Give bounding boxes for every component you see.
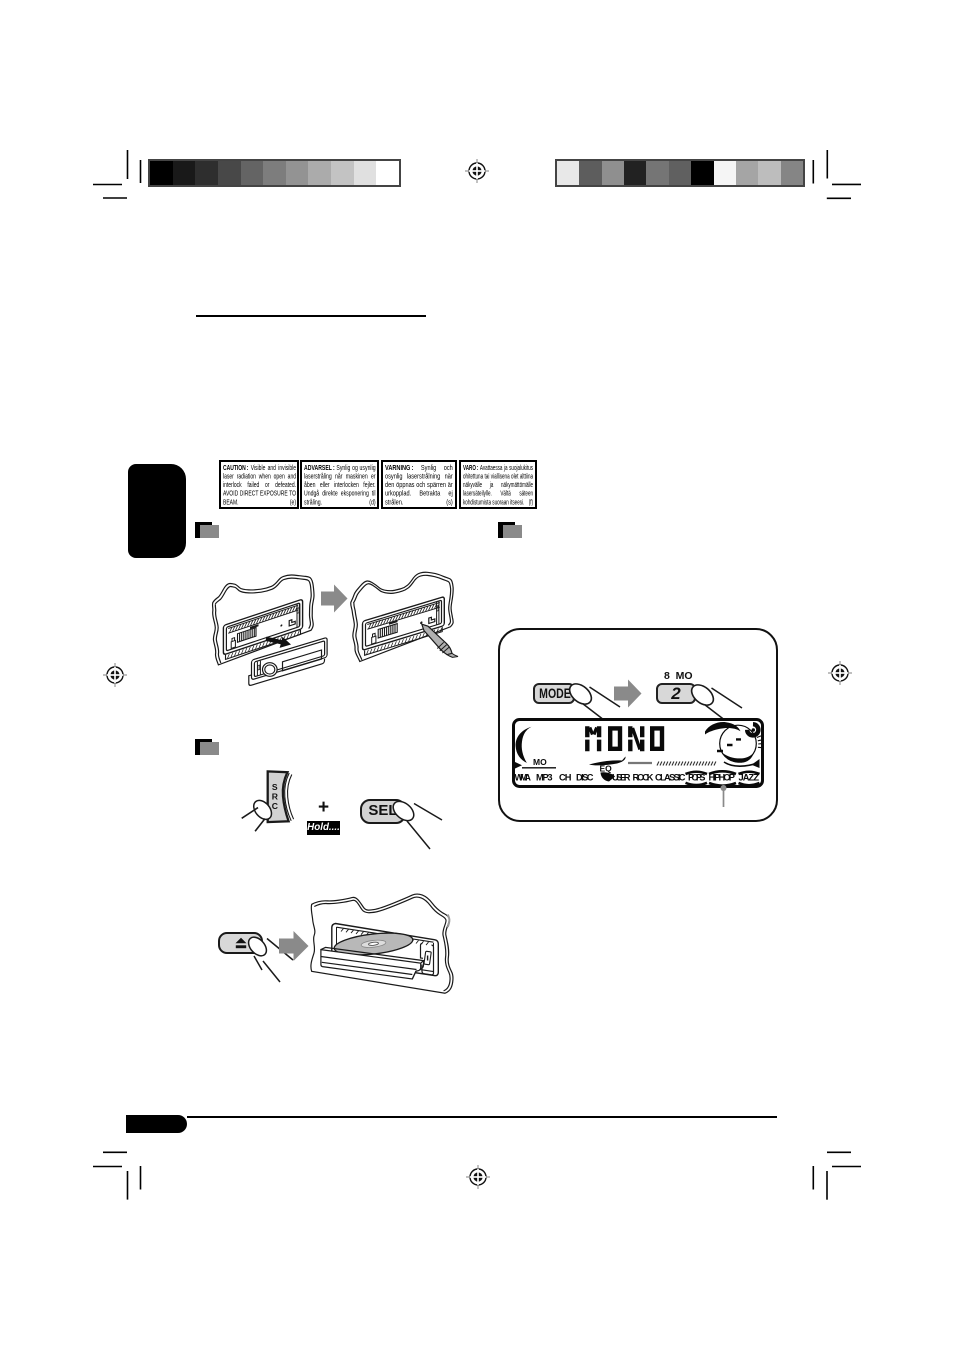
svg-text:CLASSIC: CLASSIC: [655, 773, 686, 783]
svg-text:C: C: [272, 801, 278, 811]
svg-text:ROCK: ROCK: [633, 773, 654, 783]
svg-text:MP3: MP3: [536, 773, 553, 783]
svg-text:S: S: [272, 782, 278, 792]
svg-text:USER: USER: [612, 773, 631, 783]
svg-text:POPS: POPS: [688, 773, 706, 783]
svg-text:WMA: WMA: [515, 773, 532, 783]
svg-text:EQ: EQ: [600, 764, 613, 774]
svg-text:DISC: DISC: [576, 773, 594, 783]
svg-text:CH: CH: [559, 773, 572, 783]
svg-text:R: R: [272, 792, 279, 802]
svg-text:MO: MO: [533, 757, 547, 767]
